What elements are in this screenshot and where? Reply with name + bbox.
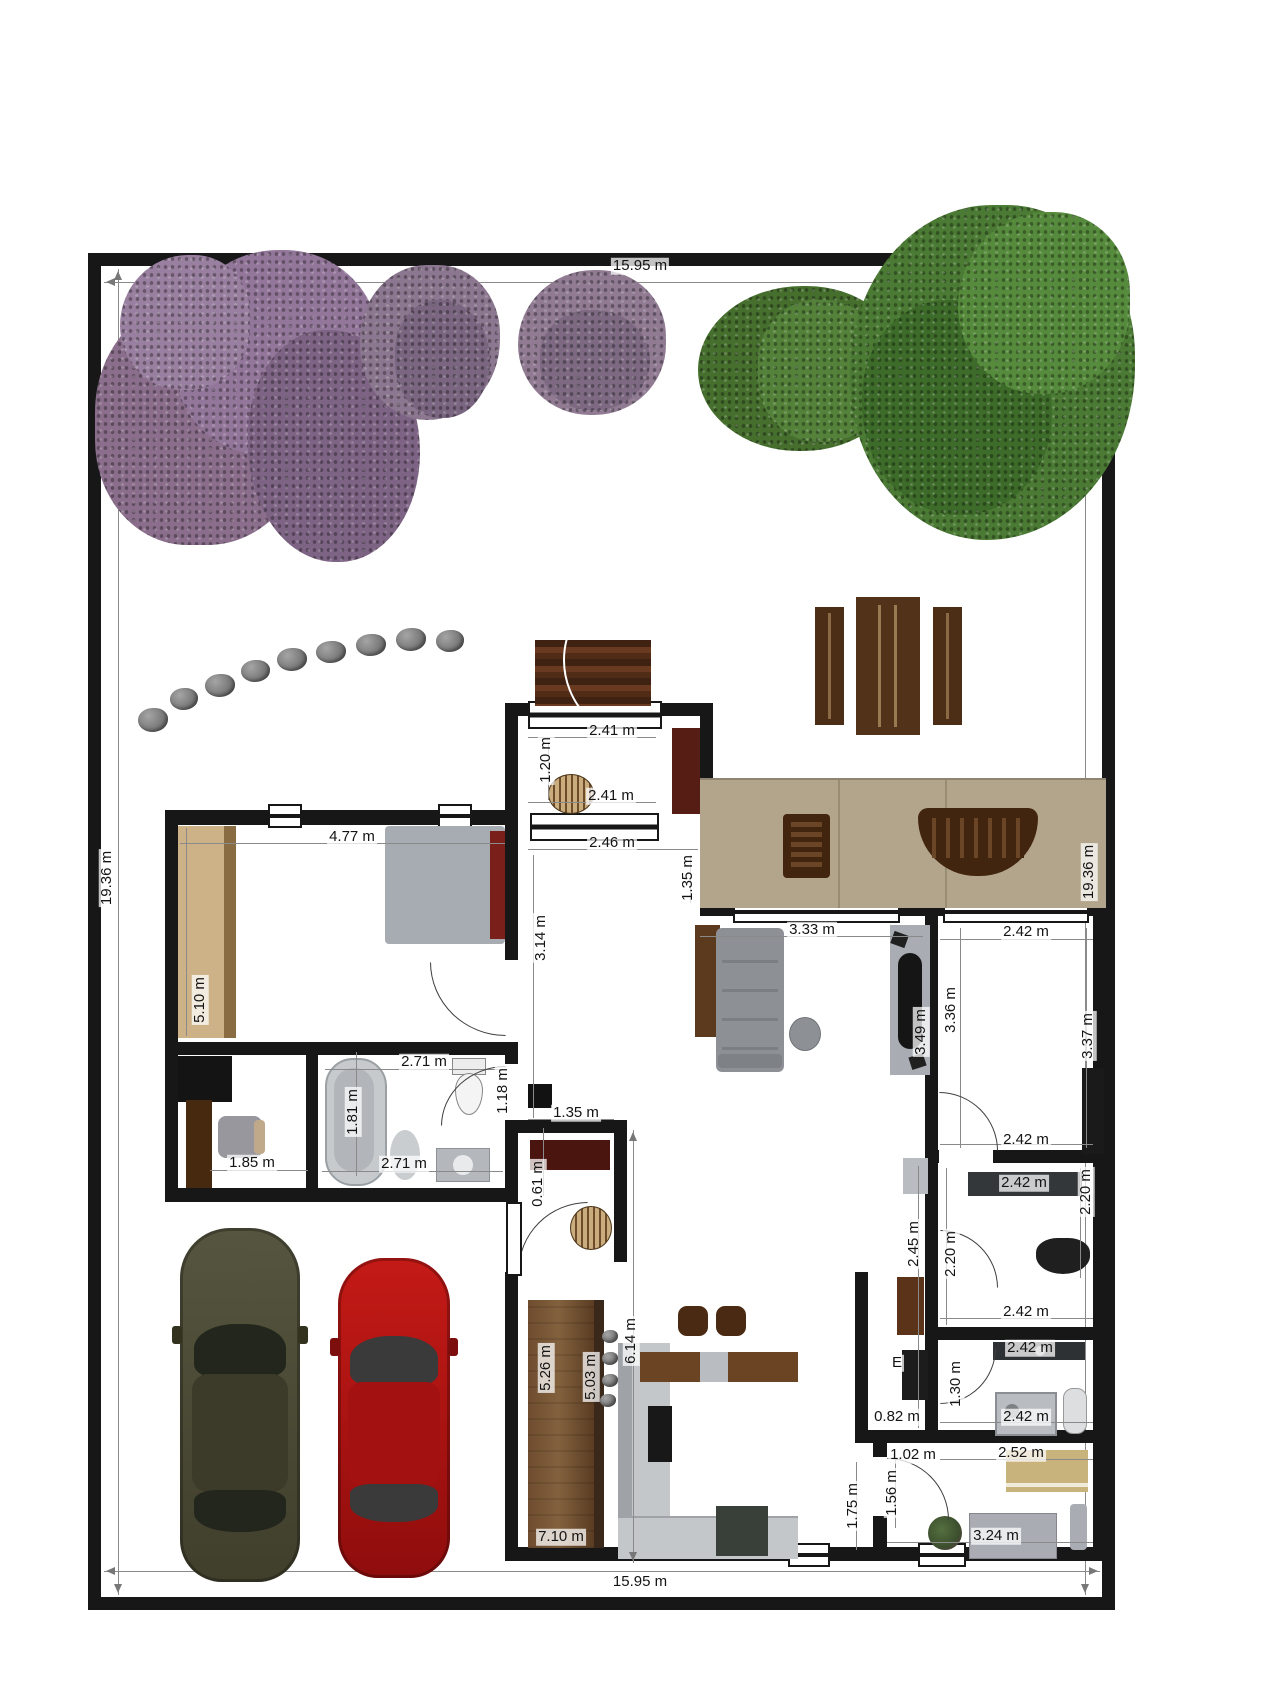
dim-label: 1.85 m	[227, 1155, 277, 1172]
stepping-stone	[396, 628, 426, 651]
bar-stool	[678, 1306, 708, 1336]
dim-label: 2.42 m	[999, 1175, 1049, 1192]
deck-curved-bench	[918, 808, 1038, 876]
wall-bed-bath-divider	[165, 1042, 518, 1055]
sink-basin	[453, 1155, 473, 1175]
armchair	[218, 1116, 262, 1158]
bar-table	[640, 1352, 798, 1382]
dim-label: 1.81 m	[345, 1087, 362, 1137]
bar-table-gray-segment	[700, 1352, 728, 1382]
car-mirror	[172, 1326, 182, 1344]
stepping-stone	[170, 688, 198, 710]
dim-line	[533, 855, 534, 1118]
dim-label: 2.41 m	[587, 723, 637, 740]
nook-bookcase	[186, 1100, 212, 1188]
coat-hook	[602, 1330, 618, 1343]
car-roof	[348, 1382, 440, 1486]
dim-label: 3.36 m	[943, 985, 960, 1035]
dim-label: 2.45 m	[906, 1219, 923, 1269]
wall-nook-right	[306, 1055, 318, 1202]
dim-label: 4.77 m	[327, 829, 377, 846]
dim-label: 1.30 m	[948, 1359, 965, 1409]
dim-line	[918, 1166, 919, 1428]
electrical-panel	[902, 1350, 928, 1400]
wall-bath-right-a	[505, 1042, 518, 1064]
floor-plan-canvas: 15.95 m19.36 m19.36 m15.95 m2.41 m1.20 m…	[0, 0, 1280, 1706]
wall-east	[1093, 903, 1106, 1561]
coat-hook	[602, 1374, 618, 1387]
dim-label: 19.36 m	[99, 849, 116, 907]
dim-label: 1.20 m	[538, 735, 555, 785]
dim-label: 1.18 m	[495, 1066, 512, 1116]
dim-label: 5.10 m	[192, 975, 209, 1025]
dim-label: 2.71 m	[379, 1156, 429, 1173]
potted-plant	[928, 1516, 962, 1550]
dim-label: 2.52 m	[996, 1445, 1046, 1462]
pantry-shelf	[528, 1300, 604, 1548]
foliage-blob	[120, 255, 250, 390]
coffee-table-round	[789, 1017, 821, 1051]
door-arc-right-bedroom	[939, 1092, 998, 1151]
utility-fixture	[1063, 1388, 1087, 1434]
garden-table	[856, 597, 920, 735]
window-leftwing-b	[438, 804, 472, 828]
dim-label: 2.46 m	[587, 835, 637, 852]
dim-label: 2.42 m	[1001, 924, 1051, 941]
dim-label: 2.71 m	[399, 1054, 449, 1071]
dim-label: 3.37 m	[1080, 1011, 1097, 1061]
sofa-cushions	[722, 934, 778, 1052]
car-red	[338, 1258, 450, 1578]
dim-label: 3.33 m	[787, 922, 837, 939]
foliage-blob	[540, 310, 650, 410]
dim-label: 2.42 m	[1005, 1340, 1055, 1357]
stepping-stone	[205, 674, 235, 697]
window-leftwing-a	[268, 804, 302, 828]
foliage-blob	[958, 212, 1130, 394]
kitchen-appliance	[716, 1506, 768, 1556]
dim-label: 15.95 m	[611, 1574, 669, 1591]
wall-entry-left	[505, 703, 518, 815]
bedroom-chair	[1070, 1504, 1087, 1550]
car-rear-window	[350, 1484, 438, 1522]
door-leaf-pantry	[506, 1202, 522, 1276]
porch-path-arc	[563, 640, 651, 706]
sofa-armrest	[718, 1054, 782, 1068]
site-wall-bottom	[88, 1597, 1115, 1610]
bench-slats	[932, 818, 1024, 858]
wall-pantry-left	[505, 1272, 518, 1561]
dim-label: 1.35 m	[680, 853, 697, 903]
corridor-mat	[903, 1158, 928, 1194]
garden-bench-left	[815, 607, 844, 725]
car-dark-olive	[180, 1228, 300, 1582]
foliage-blob	[395, 300, 490, 418]
wall-bath-right-b	[505, 1126, 518, 1202]
wall-closet-top	[505, 1120, 627, 1133]
dim-label: 2.20 m	[943, 1229, 960, 1279]
dim-label: 1.02 m	[888, 1447, 938, 1464]
bar-stool	[716, 1306, 746, 1336]
dim-label: 15.95 m	[611, 258, 669, 275]
bathroom-vanity	[436, 1148, 490, 1182]
dim-label: 0.61 m	[530, 1159, 547, 1209]
dim-label: 2.42 m	[1001, 1132, 1051, 1149]
stepping-stone	[316, 641, 346, 663]
car-windshield	[194, 1324, 286, 1378]
hall-radiator	[528, 1084, 552, 1108]
entry-cabinet	[672, 728, 700, 814]
dim-label: 2.42 m	[1001, 1304, 1051, 1321]
dim-label: 5.03 m	[583, 1352, 600, 1402]
dim-label: 2.41 m	[586, 788, 636, 805]
car-mirror	[298, 1326, 308, 1344]
dim-label: 1.75 m	[845, 1481, 862, 1531]
wall-bbed-left-a	[873, 1443, 887, 1457]
dim-line	[186, 828, 187, 1036]
dim-label: 19.36 m	[1081, 843, 1098, 901]
car-mirror	[448, 1338, 458, 1356]
bench-slat	[946, 613, 949, 719]
wall-bedroom-right	[505, 815, 518, 960]
coat-hook	[600, 1394, 616, 1407]
wall-bbed-left-b	[873, 1516, 887, 1560]
dim-label: 7.10 m	[536, 1529, 586, 1546]
dim-label: 1.35 m	[551, 1105, 601, 1122]
office-chair	[1036, 1238, 1090, 1274]
armchair-cushion	[254, 1120, 265, 1154]
dim-label: 2.20 m	[1078, 1167, 1095, 1217]
door-arc-pantry	[518, 1202, 588, 1272]
wall-west	[165, 810, 178, 1202]
sofa	[716, 928, 784, 1072]
garden-bench-right	[933, 607, 962, 725]
table-slat	[894, 605, 897, 727]
wall-closet-right	[614, 1120, 627, 1262]
stepping-stone	[436, 630, 464, 652]
terrace-deck	[700, 778, 1106, 908]
dim-label: 3.24 m	[971, 1528, 1021, 1545]
kitchen-counter-bottom	[618, 1516, 798, 1559]
dim-label: 5.26 m	[538, 1343, 555, 1393]
coat-hook	[602, 1352, 618, 1365]
entry-porch	[535, 640, 651, 706]
bed-sheet-line	[1006, 1483, 1088, 1487]
wall-leftwing-bottom	[165, 1188, 518, 1202]
deck-seam	[838, 780, 840, 908]
headboard	[490, 831, 505, 939]
nook-desk	[178, 1056, 232, 1102]
stepping-stone	[241, 660, 270, 682]
dim-label: 1.56 m	[884, 1468, 901, 1518]
table-slat	[878, 605, 881, 727]
car-windshield	[350, 1336, 438, 1386]
dim-label: 0.82 m	[872, 1409, 922, 1426]
stepping-stone	[356, 634, 386, 656]
dim-label: 6.14 m	[623, 1316, 640, 1366]
dim-label: E	[890, 1355, 904, 1372]
bench-slat	[828, 613, 831, 719]
dim-label: 2.42 m	[1001, 1409, 1051, 1426]
cooktop	[648, 1406, 672, 1462]
deck-chair	[783, 814, 830, 878]
dim-label: 3.14 m	[533, 913, 550, 963]
corridor-cabinet	[897, 1277, 924, 1335]
car-mirror	[330, 1338, 340, 1356]
car-rear-window	[194, 1490, 286, 1532]
speaker	[890, 931, 909, 948]
door-arc-left-bedroom	[430, 962, 506, 1036]
chair-slat	[791, 822, 822, 870]
dim-label: 3.49 m	[913, 1007, 930, 1057]
car-roof	[192, 1374, 288, 1492]
stepping-stone	[138, 708, 168, 732]
stepping-stone	[277, 648, 307, 671]
wall-corridor-left	[855, 1272, 868, 1443]
